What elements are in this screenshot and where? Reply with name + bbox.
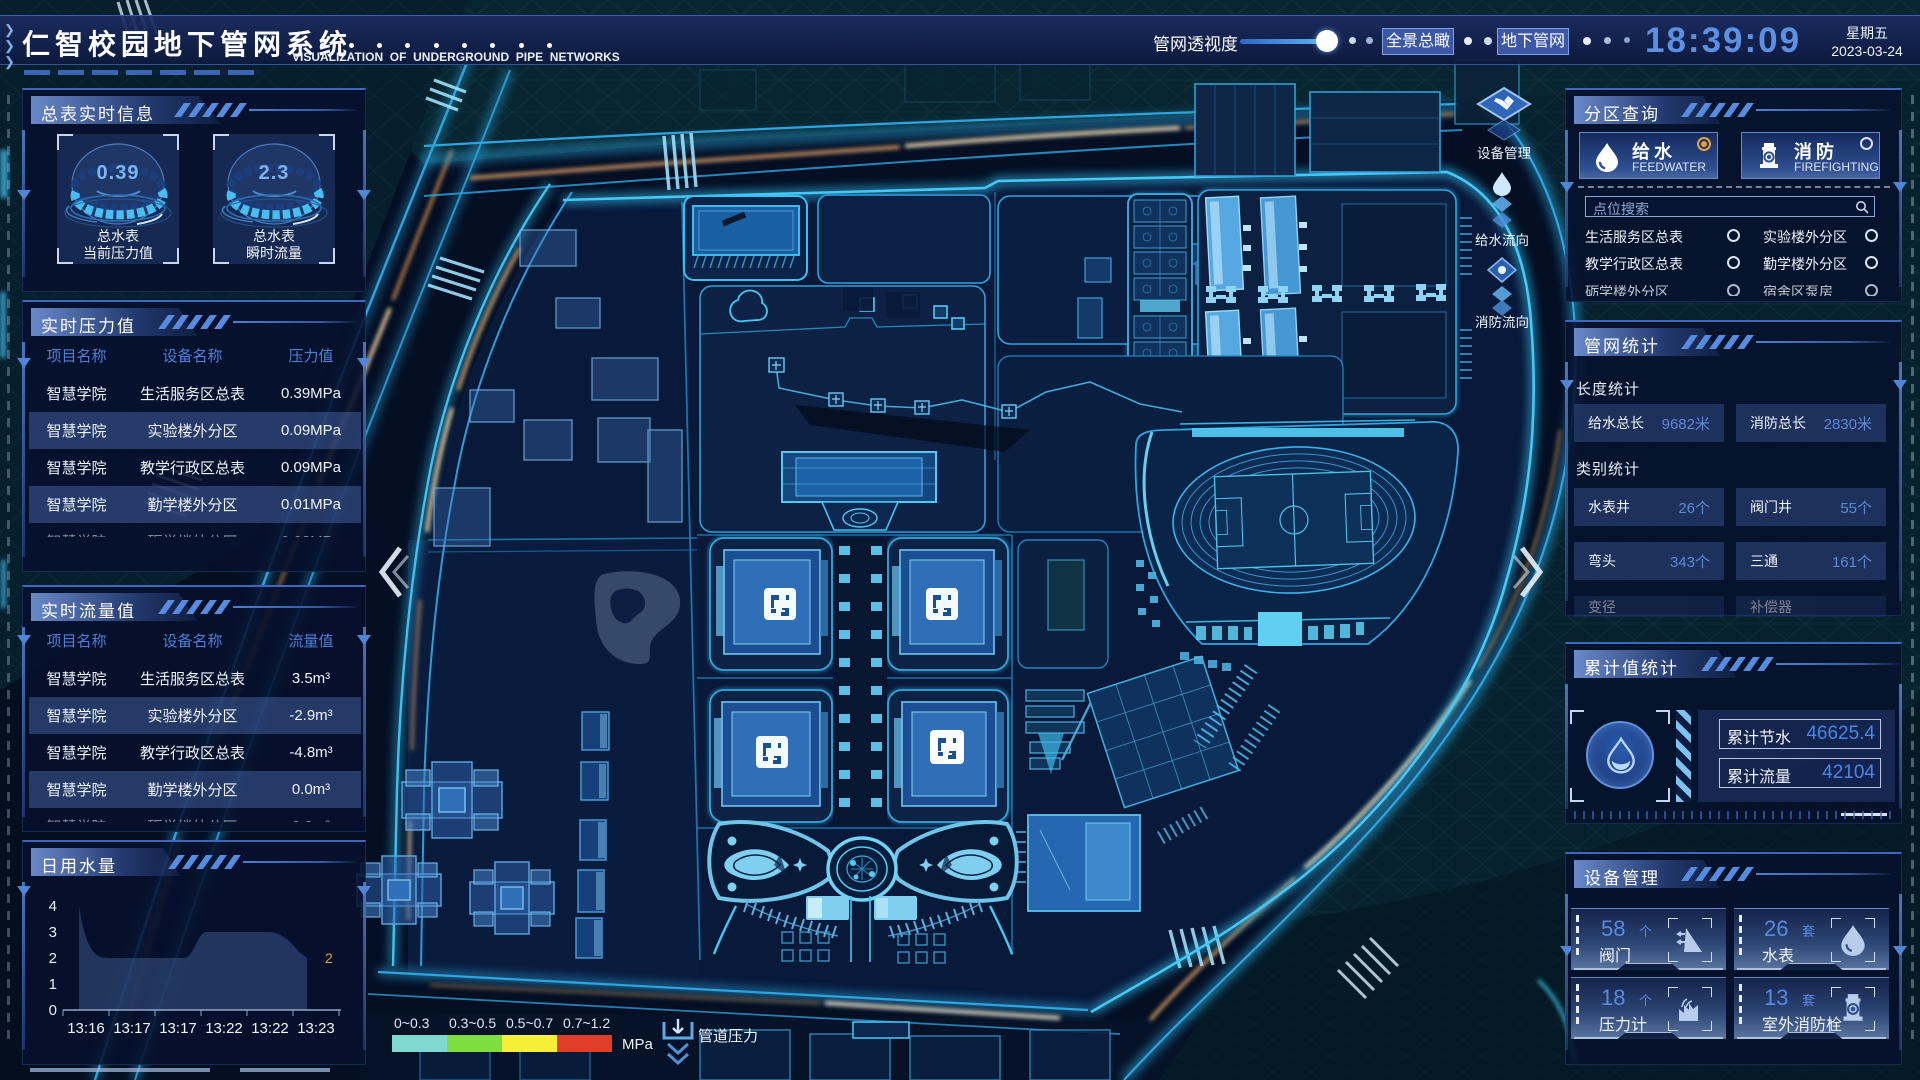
- svg-text:设备管理: 设备管理: [1477, 145, 1531, 161]
- svg-text:2: 2: [49, 950, 57, 967]
- svg-text:消防流向: 消防流向: [1475, 315, 1529, 330]
- svg-text:13:22: 13:22: [205, 1020, 243, 1037]
- svg-text:4: 4: [49, 898, 57, 915]
- svg-text:13:23: 13:23: [297, 1020, 335, 1037]
- svg-text:MPa: MPa: [622, 1036, 654, 1053]
- svg-text:给水流向: 给水流向: [1475, 233, 1529, 248]
- svg-text:0~0.3: 0~0.3: [394, 1015, 430, 1031]
- svg-text:13:17: 13:17: [113, 1020, 151, 1037]
- svg-text:13:16: 13:16: [67, 1020, 105, 1037]
- svg-text:0: 0: [49, 1002, 57, 1019]
- svg-text:13:22: 13:22: [251, 1020, 289, 1037]
- svg-text:2: 2: [325, 950, 333, 966]
- svg-text:0.3~0.5: 0.3~0.5: [449, 1015, 496, 1031]
- svg-text:1: 1: [49, 976, 57, 993]
- svg-text:0.7~1.2: 0.7~1.2: [563, 1015, 610, 1031]
- svg-text:3: 3: [49, 924, 57, 941]
- svg-text:管道压力: 管道压力: [698, 1028, 758, 1045]
- svg-text:0.5~0.7: 0.5~0.7: [506, 1015, 553, 1031]
- svg-text:13:17: 13:17: [159, 1020, 197, 1037]
